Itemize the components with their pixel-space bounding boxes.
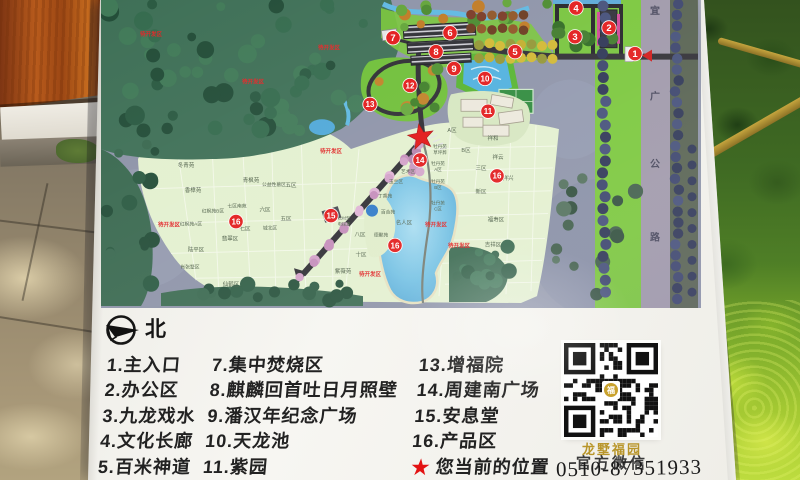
- legend-item: 3.九龙戏水: [101, 404, 196, 429]
- legend-column-1: 1.主入口2.办公区3.九龙戏水4.文化长廊5.百米神道: [97, 353, 201, 480]
- legend-item: 2.办公区: [104, 378, 199, 403]
- print-sheen: [101, 0, 701, 308]
- park-map: 待开发区待开发区待开发区待开发区待开发区待开发区待开发区待开发区冬青苑香樟苑青枫…: [101, 0, 701, 308]
- legend-item: 13.增福院: [418, 353, 560, 378]
- legend-item: 4.文化长廊: [99, 429, 194, 454]
- north-label: 北: [145, 313, 166, 343]
- legend-item: 15.安息堂: [413, 404, 555, 429]
- legend-item: 9.潘汉年纪念广场: [206, 404, 396, 429]
- legend-item: 5.百米神道: [97, 455, 192, 480]
- legend-item: 1.主入口: [106, 353, 201, 378]
- compass-icon: [102, 310, 144, 350]
- legend-item: 16.产品区: [411, 429, 553, 454]
- legend-column-2: 7.集中焚烧区8.麒麟回首吐日月照壁9.潘汉年纪念广场10.天龙池11.紫园: [202, 353, 401, 480]
- legend-item-current-location: ★您当前的位置: [409, 455, 551, 480]
- legend-item: 11.紫园: [202, 455, 392, 480]
- map-legend: 1.主入口2.办公区3.九龙戏水4.文化长廊5.百米神道7.集中焚烧区8.麒麟回…: [89, 353, 580, 480]
- photo-of-park-map-sign: 待开发区待开发区待开发区待开发区待开发区待开发区待开发区待开发区冬青苑香樟苑青枫…: [0, 0, 800, 480]
- sign-board: 待开发区待开发区待开发区待开发区待开发区待开发区待开发区待开发区冬青苑香樟苑青枫…: [86, 0, 740, 480]
- svg-text:福: 福: [606, 385, 615, 395]
- phone-number: 0510-87351933: [554, 455, 704, 480]
- wechat-qr-code: 福: [564, 343, 658, 437]
- legend-column-3: 13.增福院14.周建南广场15.安息堂16.产品区★您当前的位置: [409, 353, 560, 480]
- legend-item: 7.集中焚烧区: [211, 353, 401, 378]
- legend-item: 10.天龙池: [204, 429, 394, 454]
- legend-item: 8.麒麟回首吐日月照壁: [209, 378, 399, 403]
- star-icon: ★: [409, 456, 433, 479]
- legend-item: 14.周建南广场: [416, 378, 558, 403]
